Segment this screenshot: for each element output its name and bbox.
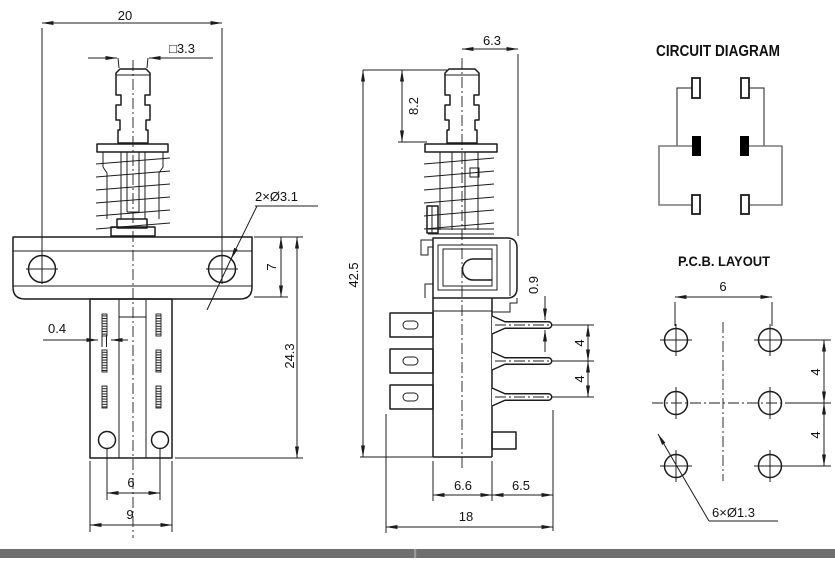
dim-column-pitch — [675, 297, 772, 326]
dim-row-pitch-bottom-label: 4 — [808, 431, 823, 438]
pcb-layout-title: P.C.B. LAYOUT — [678, 253, 770, 269]
terminal-slot — [102, 314, 107, 336]
side-cover — [421, 238, 517, 312]
solder-lugs — [390, 313, 433, 409]
circuit-terminal — [741, 195, 749, 214]
terminal-slot — [156, 350, 161, 372]
bottom-stub — [492, 432, 516, 449]
front-body — [90, 299, 172, 458]
side-shaft — [427, 152, 494, 234]
dim-hole-spec-label: 6×Ø1.3 — [712, 505, 755, 520]
front-flange — [97, 144, 168, 152]
side-flange — [425, 144, 497, 152]
terminal-slot — [102, 350, 107, 372]
circuit-terminal — [692, 195, 700, 214]
dim-body-height-label: 24.3 — [282, 343, 297, 368]
dim-mounting-holes-label: 2×Ø3.1 — [255, 189, 298, 204]
dim-row-pitch-top-label: 4 — [808, 368, 823, 375]
side-spring — [424, 158, 494, 229]
dim-pin-pitch — [552, 325, 594, 397]
footer-bar — [0, 549, 835, 558]
circuit-common-contact — [692, 136, 701, 156]
base-hole-right — [152, 432, 169, 449]
dim-terminal-thickness — [43, 335, 128, 347]
circuit-common-contact — [740, 136, 749, 156]
dim-pin-pitch-top-label: 4 — [572, 339, 587, 346]
base-hole-left — [99, 432, 116, 449]
dim-plunger-square-label: □3.3 — [169, 41, 195, 56]
switch-technical-drawing: 20 □3.3 2×Ø3.1 7 24.3 — [0, 0, 835, 566]
terminal-slot — [156, 314, 161, 336]
dim-overall-width-label: 20 — [118, 8, 132, 23]
dim-plunger-height-label: 8.2 — [406, 97, 421, 115]
cover-slot — [463, 259, 493, 280]
dim-overall-height — [360, 70, 433, 457]
circuit-terminal — [692, 78, 700, 98]
dim-top-offset-label: 6.3 — [483, 33, 501, 48]
circuit-diagram-title: CIRCUIT DIAGRAM — [656, 43, 780, 60]
dim-plunger-square — [88, 58, 213, 68]
dim-body-depth-label: 6.6 — [454, 478, 472, 493]
front-view: 20 □3.3 2×Ø3.1 7 24.3 — [13, 8, 318, 538]
dim-overall-depth-label: 18 — [459, 509, 473, 524]
dim-plunger-height — [363, 70, 447, 142]
lug-hole — [403, 321, 418, 329]
drawing-canvas: 20 □3.3 2×Ø3.1 7 24.3 — [0, 0, 835, 566]
dim-pin-pitch-bottom-label: 4 — [572, 375, 587, 382]
dim-row-pitch — [786, 340, 831, 466]
pcb-pins — [492, 316, 558, 406]
terminal-slot — [102, 386, 107, 408]
dim-pin-length-label: 6.5 — [512, 478, 530, 493]
dim-terminal-thickness-label: 0.4 — [48, 321, 66, 336]
dim-overall-height-label: 42.5 — [346, 262, 361, 287]
lug-hole — [403, 393, 418, 401]
footer-bar-seam — [414, 549, 416, 558]
dim-base-width-label: 9 — [126, 507, 133, 522]
terminal-slot — [156, 386, 161, 408]
dim-pin-dia-label: 0.9 — [526, 276, 541, 294]
pcb-layout: P.C.B. LAYOUT 6 — [652, 253, 831, 521]
circuit-terminal — [741, 78, 749, 98]
dim-column-pitch-label: 6 — [719, 279, 726, 294]
dim-overall-width — [42, 23, 222, 284]
lug-hole — [403, 357, 418, 365]
leader-mounting-holes — [207, 206, 318, 310]
dim-flange-height-label: 7 — [264, 263, 279, 270]
dim-hole-pitch-label: 6 — [127, 475, 134, 490]
side-view: 6.3 8.2 42.5 0.9 4 4 — [346, 33, 594, 533]
circuit-symbol — [659, 78, 782, 214]
circuit-diagram: CIRCUIT DIAGRAM — [656, 43, 782, 214]
